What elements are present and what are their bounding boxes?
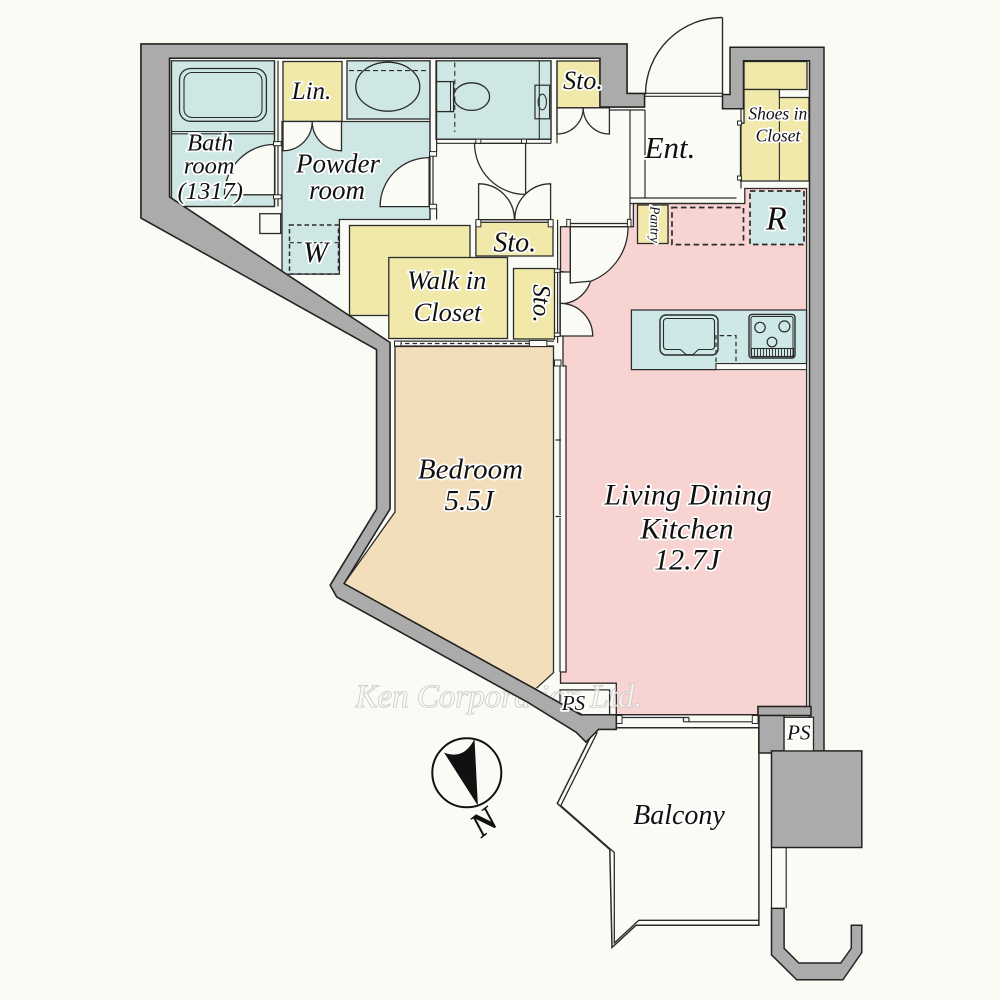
- svg-text:Sto.: Sto.: [493, 228, 536, 259]
- svg-text:Closet: Closet: [756, 126, 802, 146]
- svg-text:Powder: Powder: [295, 148, 380, 178]
- svg-text:Sto.: Sto.: [528, 284, 555, 322]
- svg-text:PS: PS: [786, 721, 811, 745]
- svg-text:5.5J: 5.5J: [444, 485, 494, 517]
- svg-text:Sto.: Sto.: [563, 66, 603, 95]
- svg-text:R: R: [765, 201, 787, 238]
- svg-text:PS: PS: [561, 691, 586, 715]
- svg-text:room: room: [309, 175, 365, 205]
- svg-text:Walk in: Walk in: [407, 265, 486, 295]
- svg-text:Balcony: Balcony: [633, 800, 725, 831]
- svg-text:Bedroom: Bedroom: [418, 454, 523, 486]
- svg-text:Shoes in: Shoes in: [748, 104, 807, 124]
- svg-text:W: W: [303, 236, 331, 269]
- svg-text:12.7J: 12.7J: [654, 544, 722, 577]
- svg-text:Pantry: Pantry: [648, 205, 663, 243]
- svg-text:Living Dining: Living Dining: [603, 479, 772, 512]
- svg-text:room: room: [184, 153, 235, 180]
- svg-text:Ent.: Ent.: [644, 130, 696, 165]
- svg-text:Closet: Closet: [414, 297, 482, 327]
- svg-text:Kitchen: Kitchen: [639, 513, 733, 546]
- svg-text:Lin.: Lin.: [291, 78, 332, 105]
- svg-text:(1317): (1317): [178, 178, 243, 205]
